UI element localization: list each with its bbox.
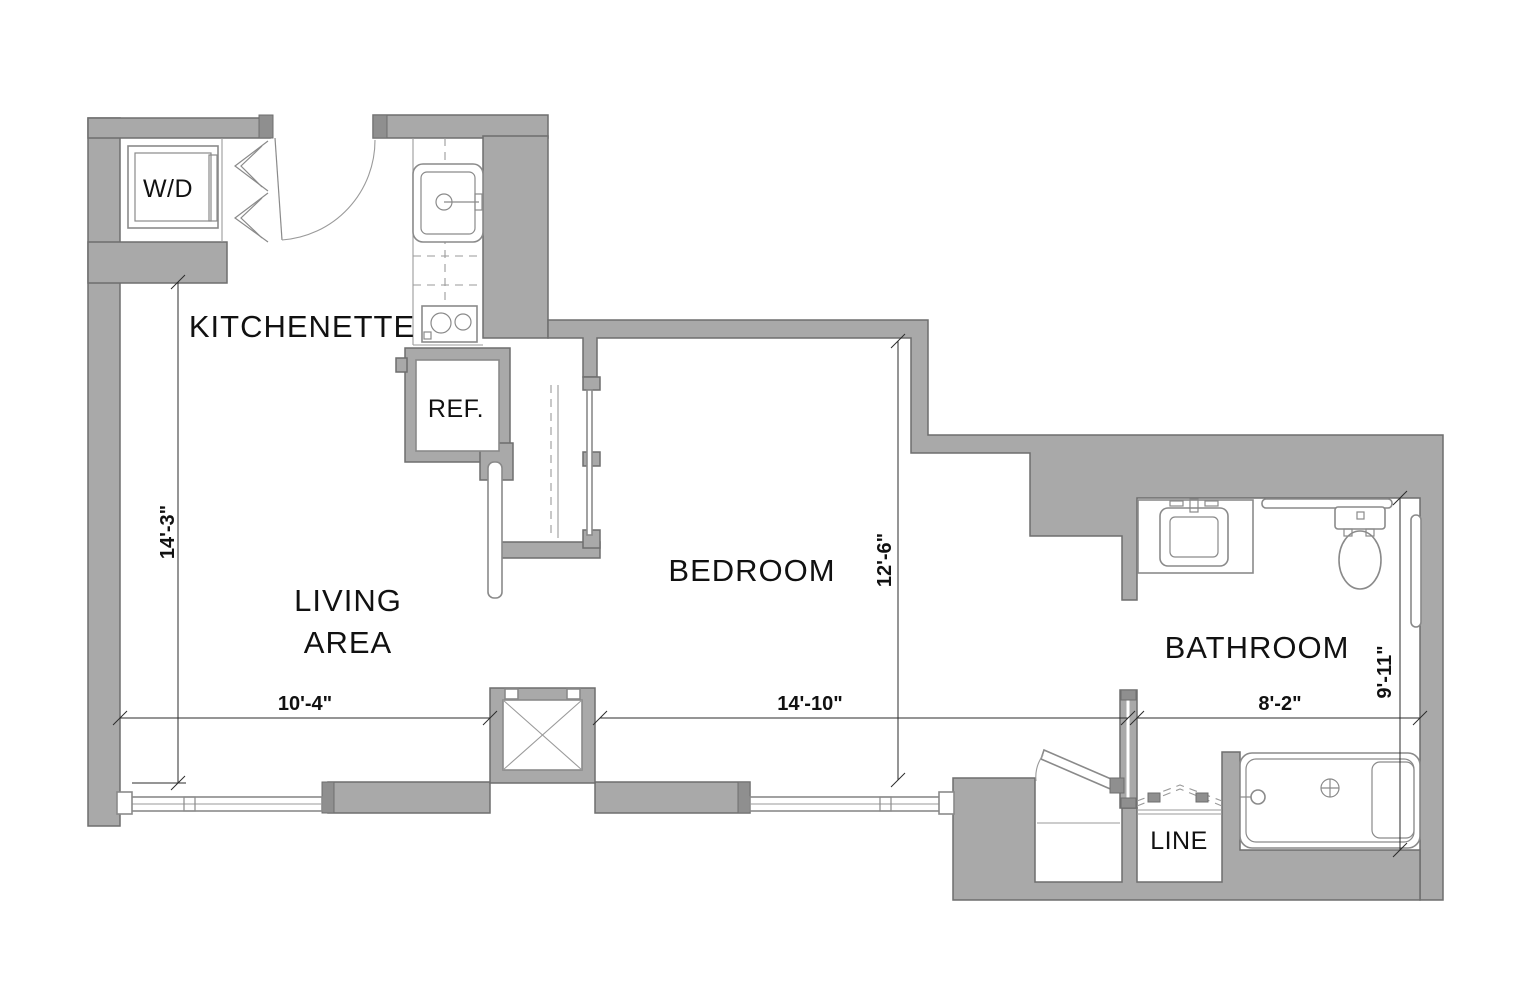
wall-top-wd <box>88 118 270 138</box>
toilet-tank <box>1335 507 1385 529</box>
closet-sliding-door <box>587 390 592 535</box>
living-area-label-line2: AREA <box>304 625 392 660</box>
linen-shelf-tab-left <box>1148 793 1160 802</box>
dim-label-living-height: 14'-3" <box>157 505 179 559</box>
entry-jamb-left <box>259 115 273 138</box>
dim-label-bedroom-width: 14'-10" <box>777 693 842 715</box>
kitchen-sink <box>413 164 483 242</box>
cooktop <box>422 306 477 342</box>
bifold-door-upper <box>235 141 268 191</box>
wall-window-band-mid <box>595 782 750 813</box>
wall-below-wd <box>88 242 227 283</box>
dim-label-bathroom-width: 8'-2" <box>1258 693 1301 715</box>
utility-closet-door-hinge <box>1110 778 1124 793</box>
floor-plan-drawing: 14'-3" 12'-6" 9'-11" 10'-4" 14'-10" 8'-2… <box>0 0 1517 1004</box>
bedroom-window-end-block <box>939 792 954 814</box>
bathroom-label: BATHROOM <box>1165 630 1350 665</box>
entry-jamb-right <box>373 115 387 138</box>
bathroom-door-hinge-bottom <box>1121 798 1136 808</box>
window-jamb-cap-mid <box>738 782 750 813</box>
dim-label-bedroom-height: 12'-6" <box>874 533 896 587</box>
column-notch-right <box>567 689 580 699</box>
refrigerator-label: REF. <box>428 395 484 423</box>
kitchenette-label: KITCHENETTE <box>189 309 415 344</box>
linen-closet <box>1137 785 1222 814</box>
living-window-end-block <box>117 792 132 814</box>
bedroom-label: BEDROOM <box>668 553 835 588</box>
bathroom-door-hinge-top <box>1121 690 1136 700</box>
towel-bar <box>1411 515 1421 627</box>
floor-plan-page: 14'-3" 12'-6" 9'-11" 10'-4" 14'-10" 8'-2… <box>0 0 1517 1004</box>
dim-label-bathroom-height: 9'-11" <box>1374 645 1396 698</box>
column-interior <box>503 689 582 770</box>
utility-closet-door-leaf <box>1041 750 1118 791</box>
wall-left-exterior <box>88 118 120 826</box>
bathtub-faucet <box>1251 790 1265 804</box>
dim-label-living-width: 10'-4" <box>278 693 332 715</box>
wall-top-kitchen <box>373 115 548 138</box>
bifold-door-lower-inner <box>241 198 262 238</box>
bathtub <box>1240 753 1420 848</box>
wall-stub-kitchen-end <box>488 462 502 598</box>
washer-dryer-label: W/D <box>143 175 193 203</box>
linen-shelf-tab-right <box>1196 793 1208 802</box>
column-notch-left <box>505 689 518 699</box>
toilet-bowl <box>1339 531 1381 589</box>
entry-door-swing-arc <box>282 140 375 240</box>
bifold-door-lower <box>235 193 268 242</box>
linen-closet-label: LINE <box>1150 827 1208 855</box>
window-jamb-cap-left <box>322 782 334 813</box>
entry-door-leaf <box>275 138 282 240</box>
closet-jamb-top <box>583 377 600 390</box>
wall-kitchen-right <box>483 136 548 338</box>
windows <box>117 792 954 814</box>
bifold-door-upper-inner <box>241 146 262 187</box>
wall-ref-tab <box>396 358 407 372</box>
wall-window-band-left <box>328 782 490 813</box>
doors <box>1036 690 1137 823</box>
living-area-label-line1: LIVING <box>294 583 402 618</box>
entry-door <box>275 138 375 240</box>
